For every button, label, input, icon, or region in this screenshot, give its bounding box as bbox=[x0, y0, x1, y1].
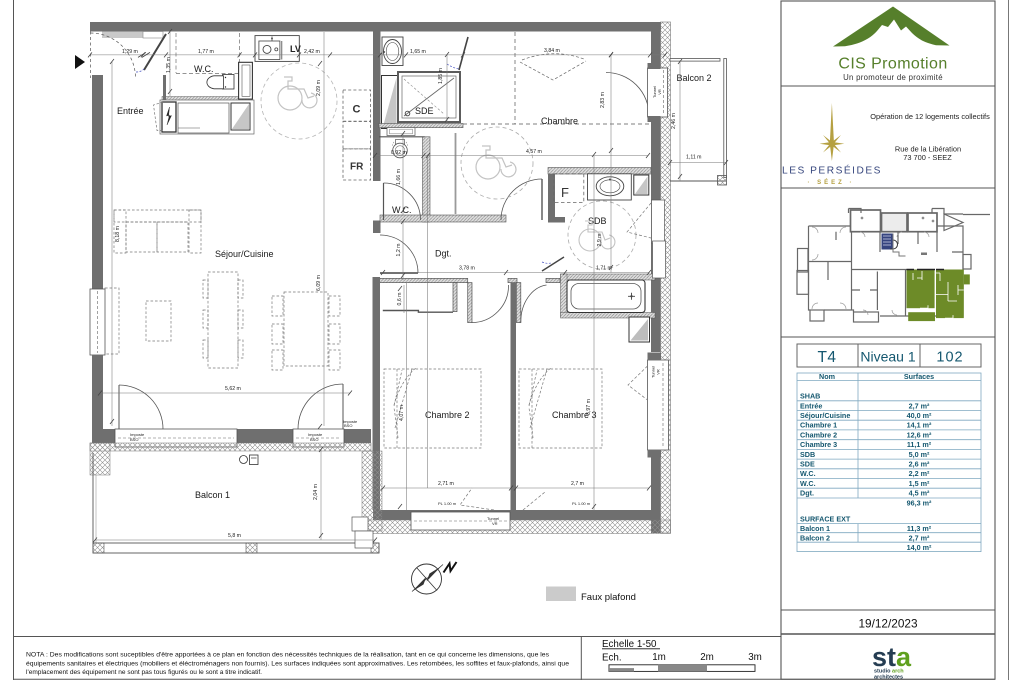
svg-text:Chambre 1: Chambre 1 bbox=[800, 421, 837, 430]
svg-text:2,7 m²: 2,7 m² bbox=[909, 401, 930, 410]
svg-text:SDE: SDE bbox=[415, 106, 434, 116]
svg-text:sta: sta bbox=[872, 642, 912, 672]
svg-text:Ech.: Ech. bbox=[602, 653, 622, 664]
svg-text:SURFACE EXT: SURFACE EXT bbox=[800, 515, 851, 524]
svg-text:PL 1.00 m: PL 1.00 m bbox=[438, 501, 457, 506]
svg-text:VR: VR bbox=[657, 89, 662, 95]
svg-text:3,97 m: 3,97 m bbox=[586, 399, 592, 415]
svg-text:LES PERSÉIDES: LES PERSÉIDES bbox=[782, 164, 882, 177]
svg-text:SHAB: SHAB bbox=[800, 392, 820, 401]
svg-text:2,04 m: 2,04 m bbox=[313, 484, 319, 500]
svg-text:l'emplacement des équipement n: l'emplacement des équipement ne sont pas… bbox=[26, 669, 262, 676]
svg-text:4,07 m: 4,07 m bbox=[399, 405, 405, 421]
svg-text:Chambre 2: Chambre 2 bbox=[425, 410, 470, 420]
svg-text:BSO: BSO bbox=[130, 437, 138, 442]
svg-text:1,65 m: 1,65 m bbox=[410, 49, 426, 55]
svg-text:Chambre 2: Chambre 2 bbox=[800, 430, 837, 439]
svg-text:11,3 m²: 11,3 m² bbox=[907, 524, 932, 533]
svg-text:3m: 3m bbox=[748, 652, 762, 663]
svg-text:14,0 m²: 14,0 m² bbox=[907, 543, 932, 552]
svg-text:Opération de 12 logements coll: Opération de 12 logements collectifs bbox=[870, 112, 990, 121]
svg-text:1,77 m: 1,77 m bbox=[198, 49, 214, 55]
svg-text:3,78 m: 3,78 m bbox=[459, 266, 475, 272]
svg-text:19/12/2023: 19/12/2023 bbox=[858, 617, 917, 631]
svg-text:2m: 2m bbox=[700, 652, 714, 663]
svg-text:6,09 m: 6,09 m bbox=[316, 275, 322, 291]
svg-text:SDE: SDE bbox=[800, 460, 815, 469]
svg-text:VR: VR bbox=[492, 521, 498, 526]
svg-text:Chambre: Chambre bbox=[541, 116, 578, 126]
svg-text:73 700 - SEEZ: 73 700 - SEEZ bbox=[903, 153, 952, 162]
svg-text:W.C.: W.C. bbox=[392, 205, 412, 215]
svg-text:Balcon 2: Balcon 2 bbox=[800, 534, 830, 543]
svg-text:T4: T4 bbox=[817, 349, 836, 366]
svg-text:Un promoteur de proximité: Un promoteur de proximité bbox=[843, 73, 943, 82]
svg-text:4,57 m: 4,57 m bbox=[526, 149, 542, 155]
svg-text:8,18 m: 8,18 m bbox=[115, 226, 121, 242]
svg-text:CIS Promotion: CIS Promotion bbox=[838, 56, 947, 73]
svg-text:FR: FR bbox=[350, 162, 364, 173]
svg-text:Surfaces: Surfaces bbox=[904, 372, 934, 381]
svg-text:NOTA : Des modifications sont: NOTA : Des modifications sont suceptible… bbox=[26, 652, 549, 659]
svg-text:14,1 m²: 14,1 m² bbox=[907, 421, 932, 430]
svg-text:BSO: BSO bbox=[310, 437, 318, 442]
svg-text:Dgt.: Dgt. bbox=[435, 249, 452, 259]
svg-text:12,6 m²: 12,6 m² bbox=[907, 430, 932, 439]
svg-text:Entrée: Entrée bbox=[117, 106, 144, 116]
svg-text:VR: VR bbox=[656, 369, 661, 375]
svg-text:2,2 m²: 2,2 m² bbox=[909, 469, 930, 478]
svg-text:1,5 m²: 1,5 m² bbox=[909, 479, 930, 488]
svg-text:5,0 m²: 5,0 m² bbox=[909, 450, 930, 459]
svg-text:102: 102 bbox=[936, 350, 963, 366]
svg-text:2,71 m: 2,71 m bbox=[438, 481, 454, 487]
svg-text:40,0 m²: 40,0 m² bbox=[907, 411, 932, 420]
svg-text:1,2 m: 1,2 m bbox=[396, 244, 402, 257]
svg-text:BSO: BSO bbox=[344, 423, 352, 428]
svg-text:96,3 m²: 96,3 m² bbox=[907, 498, 932, 507]
svg-text:Balcon 1: Balcon 1 bbox=[800, 524, 830, 533]
svg-text:Balcon 2: Balcon 2 bbox=[677, 73, 712, 83]
svg-text:Chambre 3: Chambre 3 bbox=[800, 440, 837, 449]
svg-text:Faux plafond: Faux plafond bbox=[581, 592, 636, 603]
svg-text:2,42 m: 2,42 m bbox=[304, 49, 320, 55]
svg-text:Séjour/Cuisine: Séjour/Cuisine bbox=[215, 249, 274, 259]
svg-text:2,9 m: 2,9 m bbox=[597, 234, 603, 247]
svg-text:1,35 m: 1,35 m bbox=[166, 57, 172, 73]
svg-text:Nom: Nom bbox=[819, 372, 835, 381]
svg-text:· SÉEZ ·: · SÉEZ · bbox=[807, 178, 854, 186]
svg-text:1m: 1m bbox=[652, 652, 666, 663]
svg-text:2,7 m: 2,7 m bbox=[571, 481, 584, 487]
svg-text:4,5 m²: 4,5 m² bbox=[909, 489, 930, 498]
svg-text:W.C.: W.C. bbox=[800, 469, 816, 478]
svg-text:1,11 m: 1,11 m bbox=[686, 155, 701, 161]
svg-text:W.C.: W.C. bbox=[800, 479, 816, 488]
svg-text:Echelle 1-50: Echelle 1-50 bbox=[602, 639, 657, 650]
svg-text:11,1 m²: 11,1 m² bbox=[907, 440, 932, 449]
svg-text:2,7 m²: 2,7 m² bbox=[909, 534, 930, 543]
svg-text:F: F bbox=[561, 185, 569, 200]
svg-text:1,29 m: 1,29 m bbox=[122, 49, 138, 55]
svg-text:Séjour/Cuisine: Séjour/Cuisine bbox=[800, 411, 850, 420]
svg-text:3,84 m: 3,84 m bbox=[544, 48, 560, 54]
svg-text:1,71 m: 1,71 m bbox=[596, 266, 612, 272]
svg-text:Entrée: Entrée bbox=[800, 401, 822, 410]
svg-text:architectes: architectes bbox=[874, 675, 903, 680]
svg-text:Niveau 1: Niveau 1 bbox=[860, 349, 915, 365]
svg-text:5,8 m: 5,8 m bbox=[228, 533, 241, 539]
svg-text:5,62 m: 5,62 m bbox=[225, 386, 241, 392]
svg-text:équipements sanitaires et élec: équipements sanitaires et électriques (m… bbox=[26, 660, 570, 667]
svg-text:0,92 m: 0,92 m bbox=[391, 150, 407, 156]
svg-text:0,6 m: 0,6 m bbox=[397, 293, 403, 306]
svg-text:C: C bbox=[353, 104, 361, 116]
svg-text:PL 1.00 m: PL 1.00 m bbox=[572, 501, 591, 506]
svg-text:2,46 m: 2,46 m bbox=[671, 113, 677, 129]
svg-text:1,66 m: 1,66 m bbox=[396, 169, 402, 185]
svg-text:W.C.: W.C. bbox=[194, 64, 214, 74]
svg-text:Dgt.: Dgt. bbox=[800, 489, 814, 498]
svg-text:1,85 m: 1,85 m bbox=[438, 68, 444, 84]
svg-text:LV: LV bbox=[290, 44, 301, 54]
svg-text:2,09 m: 2,09 m bbox=[316, 80, 322, 96]
svg-text:Balcon 1: Balcon 1 bbox=[195, 490, 230, 500]
svg-text:2,83 m: 2,83 m bbox=[600, 92, 606, 108]
svg-text:2,6 m²: 2,6 m² bbox=[909, 460, 930, 469]
svg-text:SDB: SDB bbox=[800, 450, 815, 459]
